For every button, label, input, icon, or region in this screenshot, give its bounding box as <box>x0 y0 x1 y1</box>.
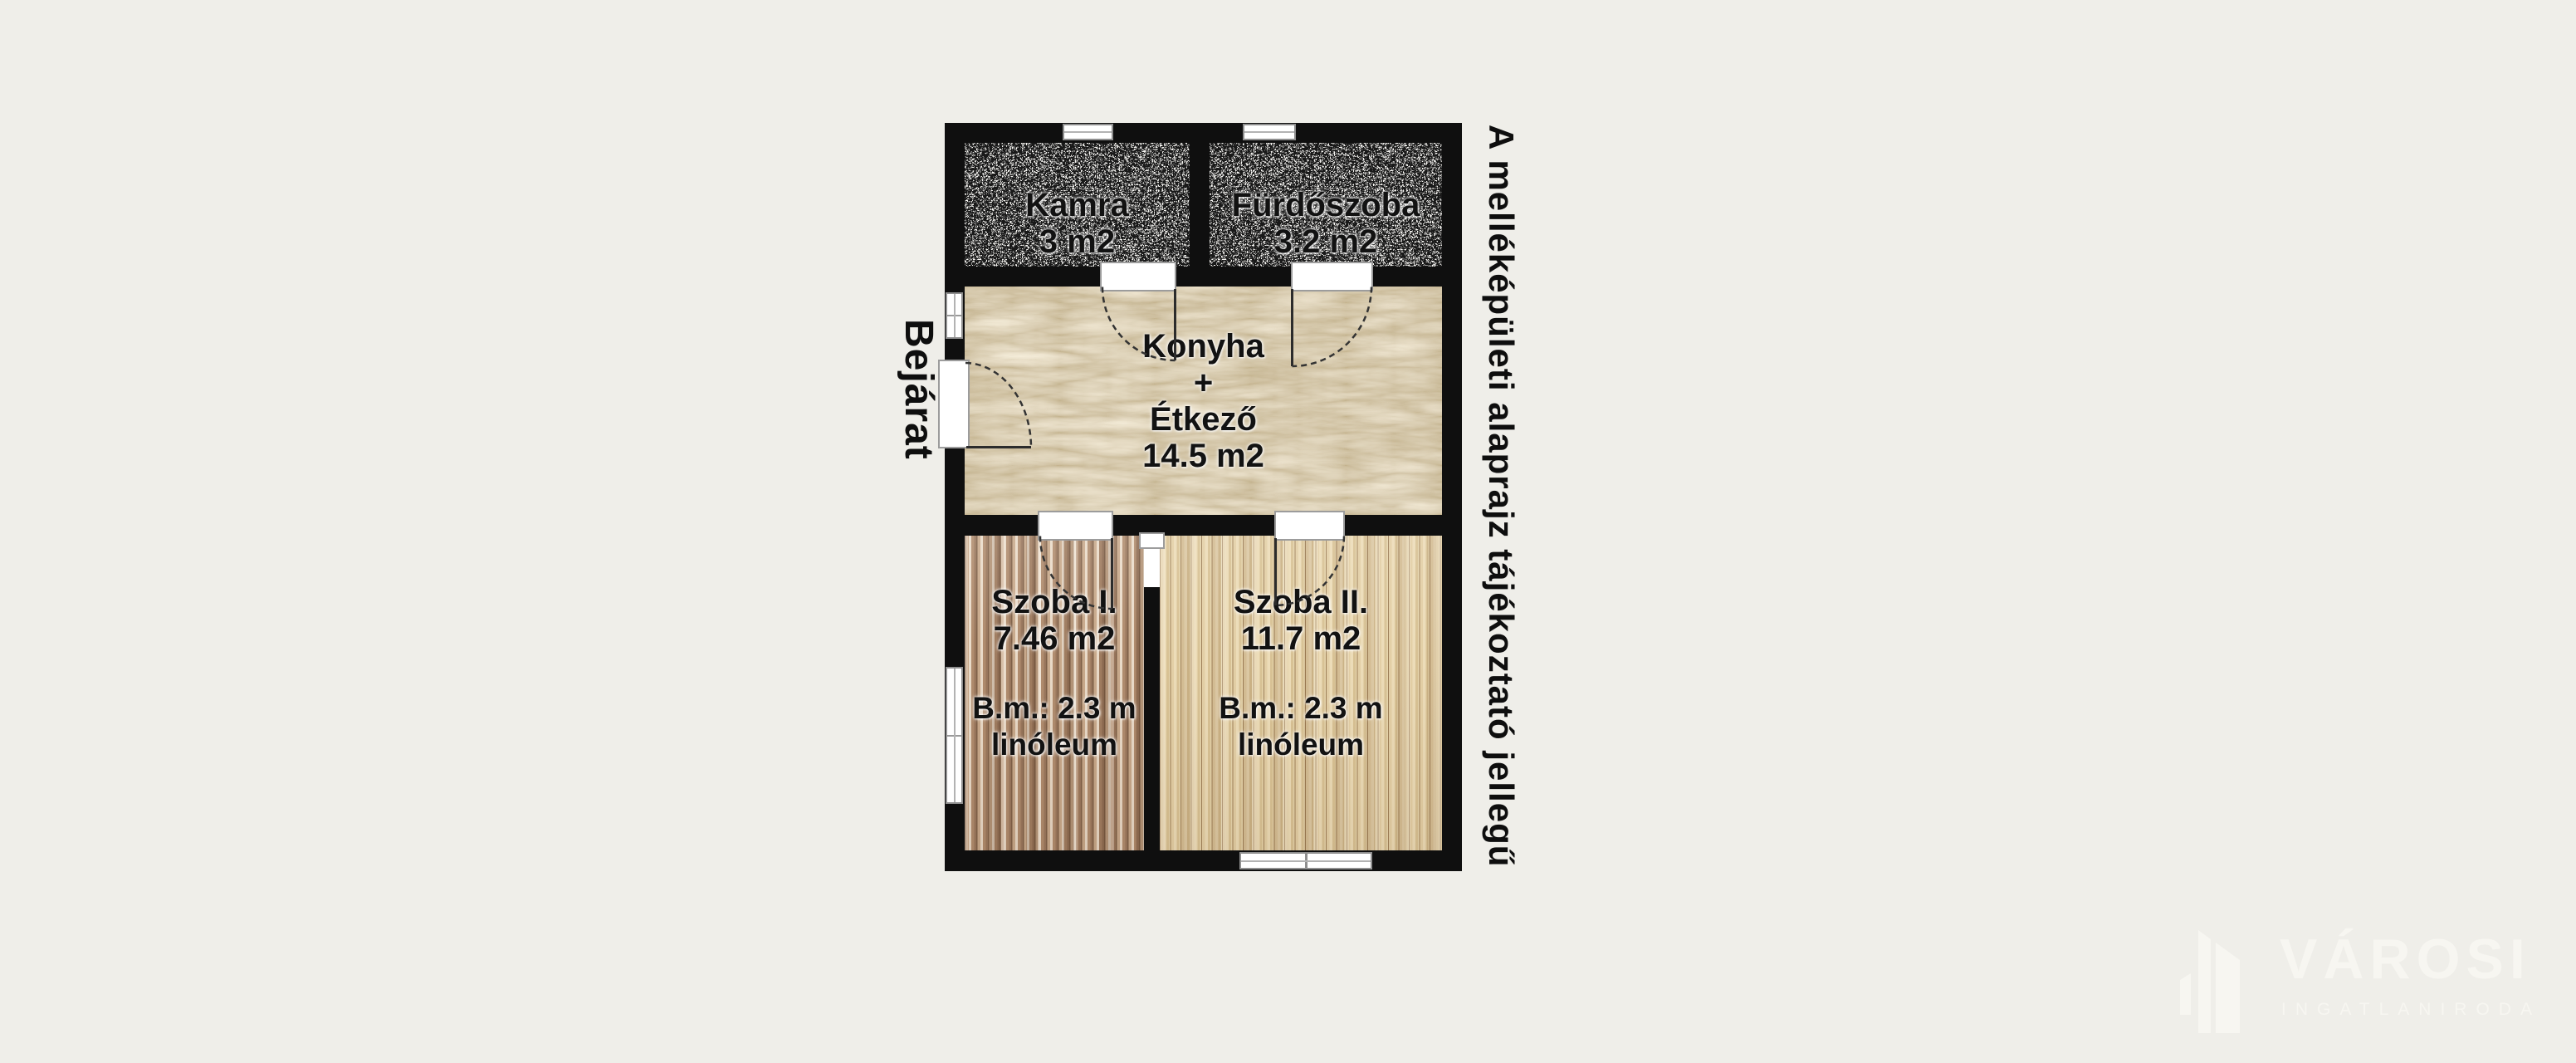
room-area: 7.46 m2 <box>972 620 1136 657</box>
window <box>1063 124 1113 140</box>
plus-sign: + <box>1142 365 1264 401</box>
door-opening-szoba1 <box>1038 511 1113 541</box>
floor-material: linóleum <box>972 727 1136 763</box>
entrance-door-opening <box>938 360 970 448</box>
room-name: Konyha <box>1142 328 1264 365</box>
floor-material: linóleum <box>1219 727 1382 763</box>
floor-plan: Kamra 3 m2 Fürdőszoba 3.2 m2 Konyha + Ét… <box>945 123 1462 871</box>
room-szoba2-labels: Szoba II. 11.7 m2 B.m.: 2.3 m linóleum <box>1219 584 1382 763</box>
room-furdoszoba: Fürdőszoba 3.2 m2 <box>1210 143 1442 267</box>
room-konyha-etkezo: Konyha + Étkező 14.5 m2 <box>965 287 1442 515</box>
room-szoba-2: Szoba II. 11.7 m2 B.m.: 2.3 m linóleum <box>1160 536 1442 850</box>
entrance-label: Bejárat <box>896 319 941 460</box>
window <box>1239 852 1372 870</box>
disclaimer-label: A melléképületi alaprajz tájékoztató jel… <box>1481 125 1521 867</box>
door-opening-szoba2 <box>1274 511 1345 541</box>
room-divider-sill <box>1139 532 1165 549</box>
room-area: 11.7 m2 <box>1219 620 1382 657</box>
room-name: Kamra <box>1025 187 1129 223</box>
room-area: 3.2 m2 <box>1232 223 1420 260</box>
ceiling-height: B.m.: 2.3 m <box>972 690 1136 727</box>
watermark-logo: VÁROSI INGATLANIRODA <box>2158 920 2557 1045</box>
door-opening-kamra <box>1100 262 1176 291</box>
buildings-icon <box>2180 927 2256 1033</box>
room-name-2: Étkező <box>1142 401 1264 438</box>
floor-plan-page: Kamra 3 m2 Fürdőszoba 3.2 m2 Konyha + Ét… <box>0 0 2576 1063</box>
ceiling-height: B.m.: 2.3 m <box>1219 690 1382 727</box>
door-opening-furdoszoba <box>1291 262 1373 291</box>
room-name: Szoba I. <box>972 584 1136 620</box>
brand-tagline: INGATLANIRODA <box>2281 1000 2541 1020</box>
room-area: 3 m2 <box>1025 223 1129 260</box>
room-szoba1-labels: Szoba I. 7.46 m2 B.m.: 2.3 m linóleum <box>972 584 1136 763</box>
room-kamra: Kamra 3 m2 <box>965 143 1190 267</box>
window <box>946 292 963 339</box>
window <box>1243 124 1296 140</box>
room-szoba-1: Szoba I. 7.46 m2 B.m.: 2.3 m linóleum <box>965 536 1144 850</box>
room-area: 14.5 m2 <box>1142 438 1264 474</box>
brand-name: VÁROSI <box>2280 927 2531 992</box>
room-kamra-labels: Kamra 3 m2 <box>1025 187 1129 260</box>
room-furdoszoba-labels: Fürdőszoba 3.2 m2 <box>1232 187 1420 260</box>
room-name: Fürdőszoba <box>1232 187 1420 223</box>
room-konyha-labels: Konyha + Étkező 14.5 m2 <box>1142 328 1264 474</box>
room-name: Szoba II. <box>1219 584 1382 620</box>
window <box>946 667 963 804</box>
